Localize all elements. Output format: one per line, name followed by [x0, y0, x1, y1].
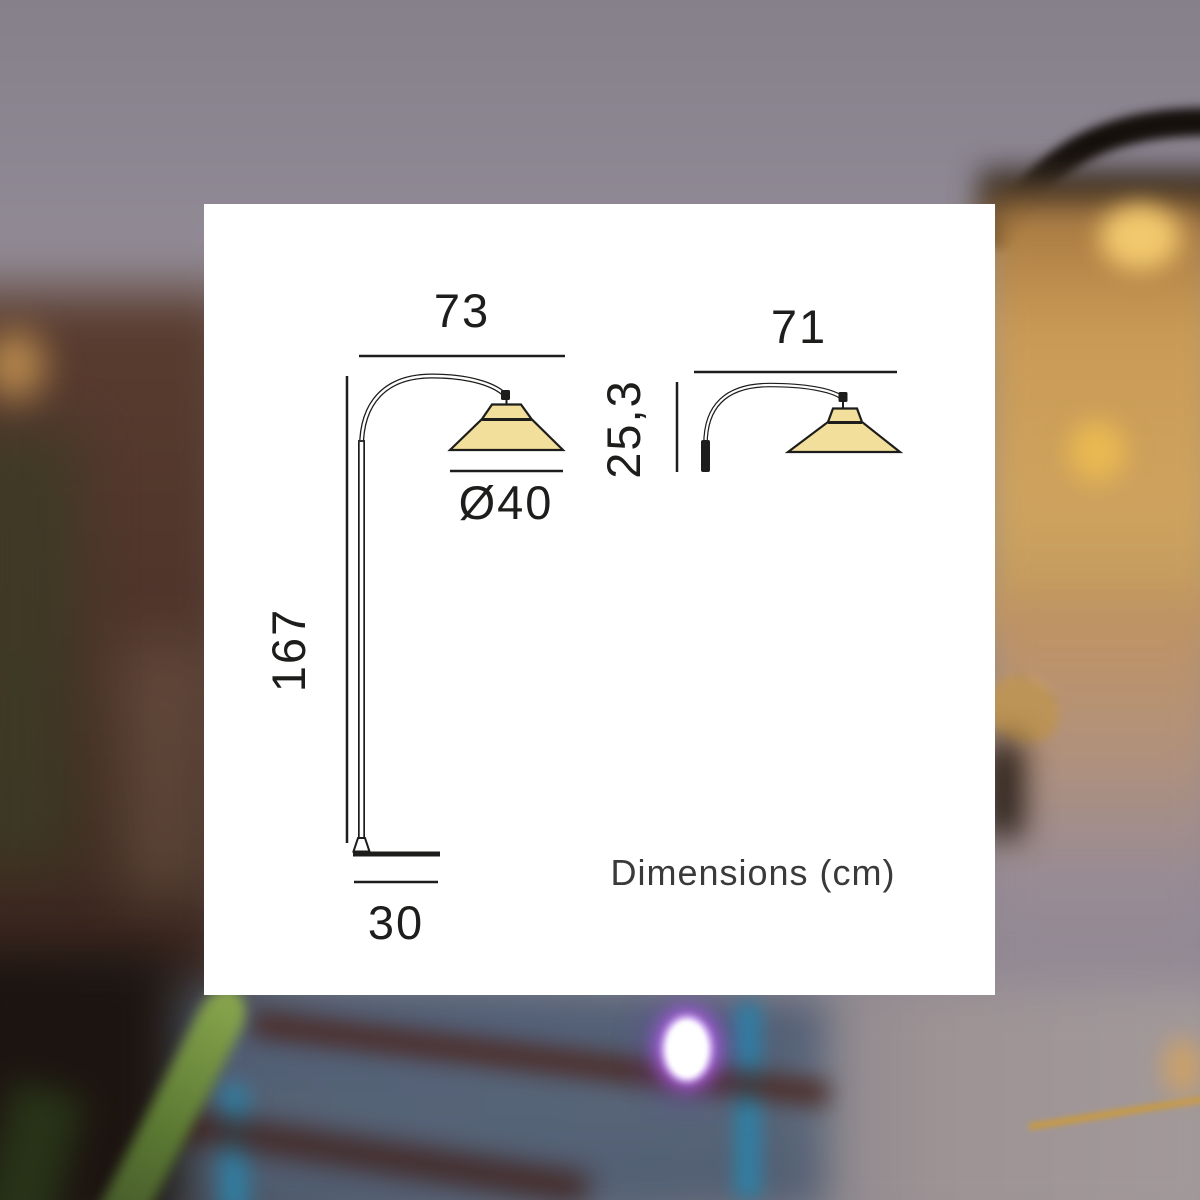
floor-lamp-height-value: 167 — [262, 608, 315, 692]
wall-lamp-drawing: 71 25,3 — [597, 300, 900, 479]
floor-lamp-drawing: 73 167 30 Ø40 — [262, 284, 565, 949]
floor-lamp-width-value: 73 — [434, 284, 490, 337]
wall-bracket — [701, 440, 710, 472]
left-olive-strip — [0, 430, 80, 870]
teal-post — [735, 1003, 761, 1198]
dimensions-diagram: 73 167 30 Ø40 71 — [204, 204, 995, 995]
floor-lamp-shade — [450, 405, 563, 451]
wall-lamp-width-value: 71 — [771, 300, 827, 353]
purple-light-dot — [666, 1020, 708, 1078]
wall-lamp-shade — [788, 409, 900, 453]
arm-elbow-fitting — [839, 392, 848, 402]
left-light-patch — [120, 640, 210, 900]
floor-lamp-base-value: 30 — [368, 896, 424, 949]
amber-wardrobe — [985, 200, 1200, 630]
light-bokeh — [1068, 420, 1126, 482]
light-bokeh — [1100, 205, 1180, 270]
wall-lamp-height-value: 25,3 — [597, 379, 650, 478]
dimensions-caption: Dimensions (cm) — [610, 852, 895, 893]
arm-elbow-fitting — [501, 390, 510, 400]
light-bokeh — [1162, 1038, 1200, 1096]
floor-lamp-diameter-value: Ø40 — [459, 476, 554, 529]
floor-lamp-foot — [354, 838, 370, 852]
dimensions-card: 73 167 30 Ø40 71 — [204, 204, 995, 995]
